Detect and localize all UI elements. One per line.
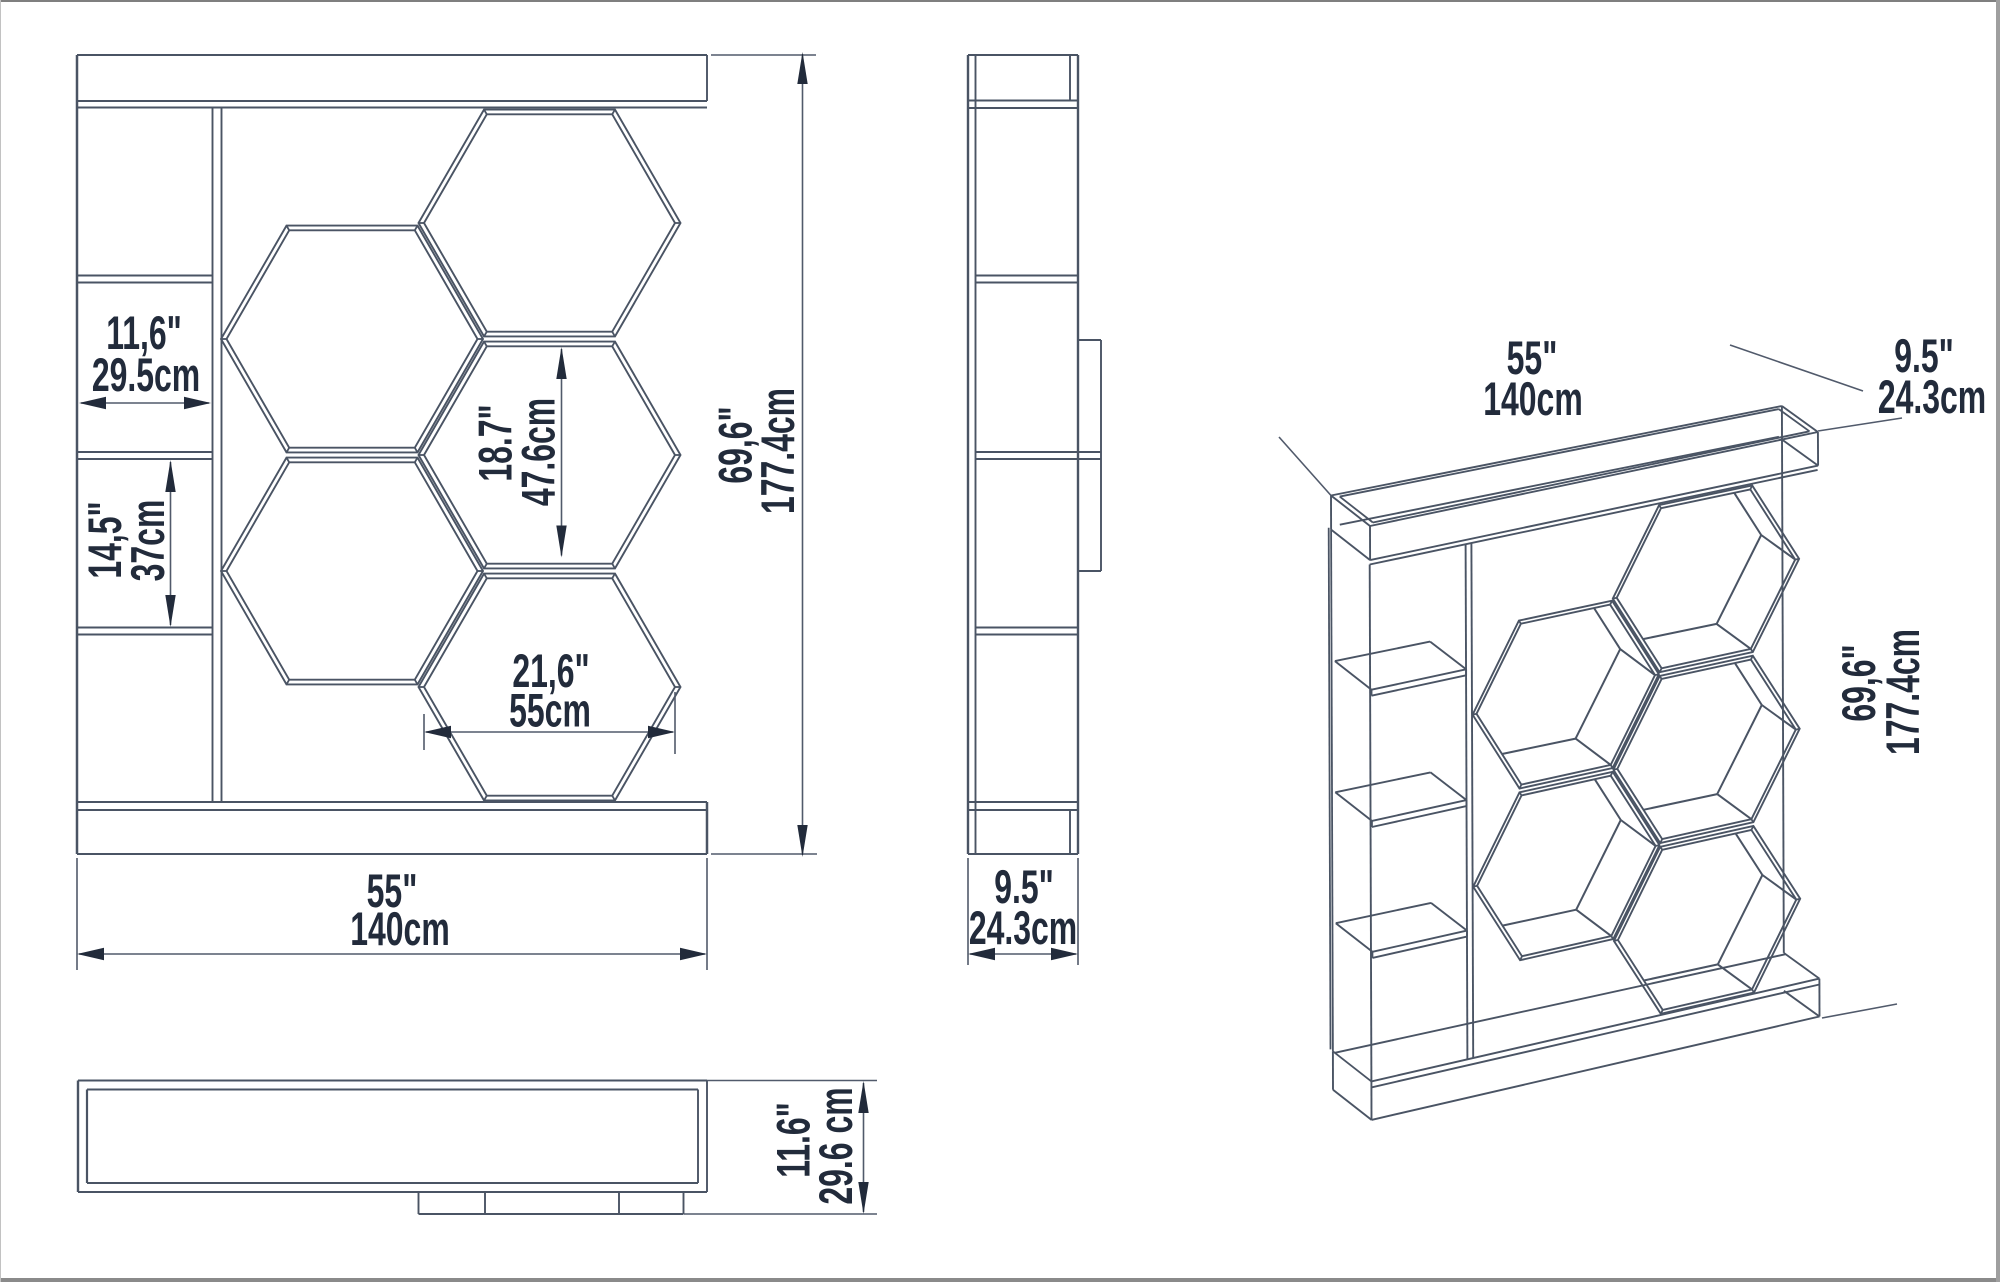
- svg-text:24.3cm: 24.3cm: [969, 902, 1077, 955]
- svg-text:140cm: 140cm: [1483, 373, 1582, 426]
- svg-text:37cm: 37cm: [122, 500, 175, 582]
- svg-text:29.5cm: 29.5cm: [92, 349, 200, 402]
- svg-text:177.4cm: 177.4cm: [1877, 629, 1930, 755]
- svg-text:177.4cm: 177.4cm: [752, 388, 805, 514]
- svg-text:55cm: 55cm: [509, 684, 591, 737]
- svg-text:29.6 cm: 29.6 cm: [810, 1087, 863, 1204]
- svg-text:47.6cm: 47.6cm: [512, 398, 565, 506]
- svg-text:140cm: 140cm: [350, 903, 449, 956]
- svg-text:24.3cm: 24.3cm: [1878, 371, 1986, 424]
